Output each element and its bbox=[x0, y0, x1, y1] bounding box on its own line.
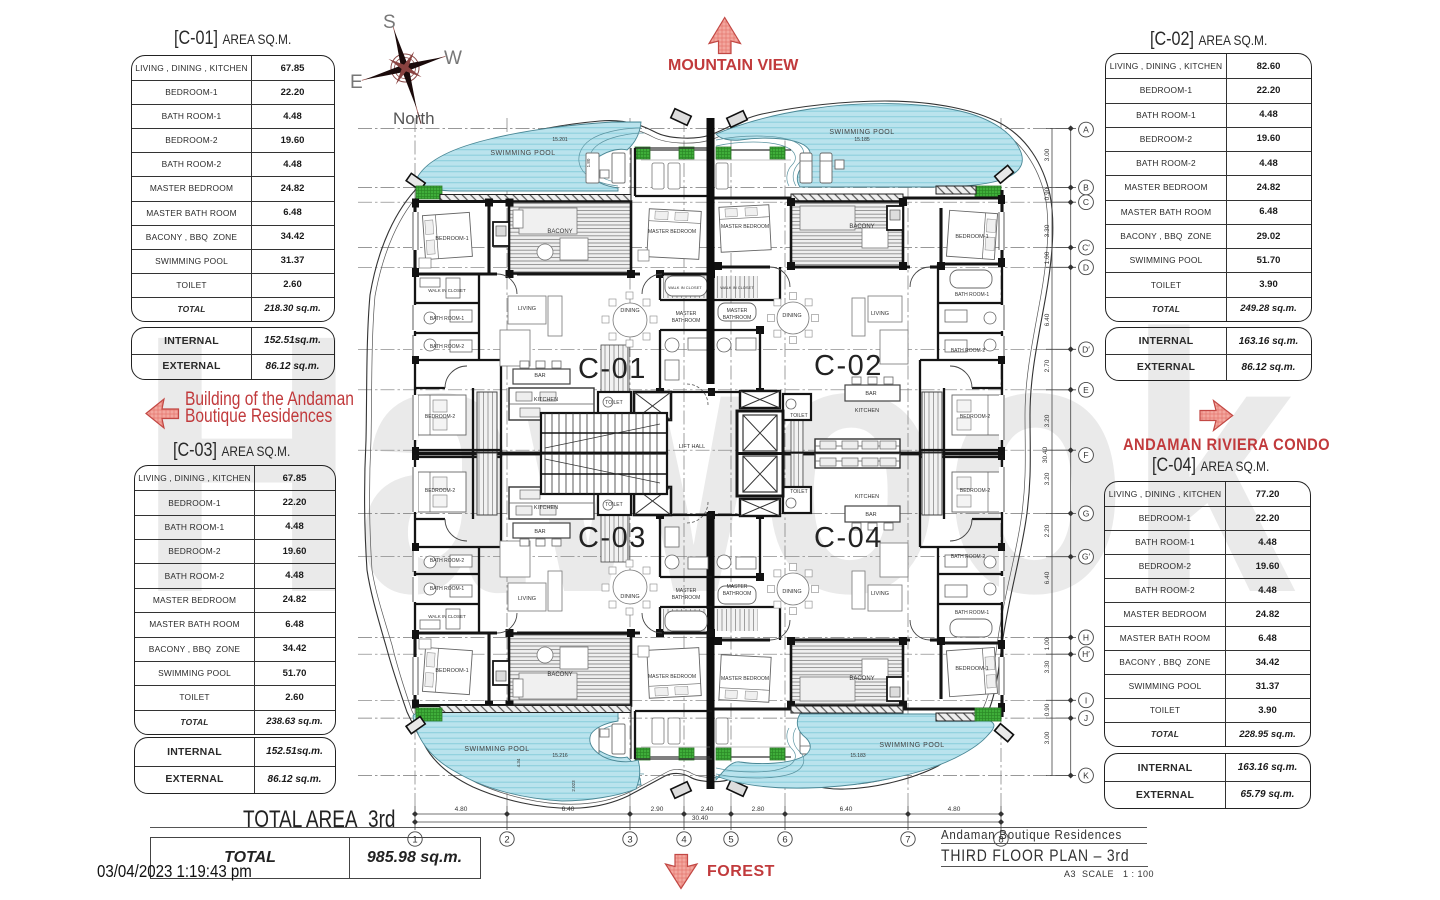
svg-text:MASTER: MASTER bbox=[727, 308, 748, 314]
svg-text:MASTER: MASTER bbox=[676, 588, 697, 594]
svg-text:S: S bbox=[383, 12, 396, 33]
svg-text:BATHROOM: BATHROOM bbox=[723, 591, 752, 597]
svg-text:BEDROOM-2: BEDROOM-2 bbox=[960, 488, 991, 494]
svg-text:TOILET: TOILET bbox=[605, 400, 622, 406]
svg-text:BAR: BAR bbox=[865, 391, 876, 397]
svg-text:KITCHEN: KITCHEN bbox=[534, 397, 558, 403]
svg-text:I: I bbox=[1085, 695, 1087, 705]
svg-text:BEDROOM-1: BEDROOM-1 bbox=[955, 666, 988, 672]
svg-text:BAR: BAR bbox=[865, 512, 876, 518]
svg-text:E: E bbox=[1083, 385, 1089, 395]
svg-text:3.30: 3.30 bbox=[1044, 660, 1051, 673]
svg-text:BATH ROOM-1: BATH ROOM-1 bbox=[430, 586, 465, 592]
svg-text:WALK IN CLOSET: WALK IN CLOSET bbox=[720, 285, 754, 290]
svg-text:1.80: 1.80 bbox=[586, 158, 591, 167]
svg-text:BATH ROOM-2: BATH ROOM-2 bbox=[430, 344, 465, 350]
svg-text:BATH ROOM-1: BATH ROOM-1 bbox=[955, 610, 990, 616]
svg-text:TOILET: TOILET bbox=[605, 502, 622, 508]
svg-text:SWIMMING POOL: SWIMMING POOL bbox=[464, 746, 529, 753]
svg-text:LIVING: LIVING bbox=[518, 306, 536, 312]
svg-text:2.20: 2.20 bbox=[1044, 524, 1051, 537]
svg-text:30.40: 30.40 bbox=[692, 815, 709, 822]
svg-text:BATH ROOM-1: BATH ROOM-1 bbox=[955, 292, 990, 298]
svg-text:3.30: 3.30 bbox=[1044, 224, 1051, 237]
svg-text:WALK IN CLOSET: WALK IN CLOSET bbox=[428, 614, 466, 619]
svg-text:2: 2 bbox=[504, 835, 509, 846]
svg-text:DINING: DINING bbox=[620, 594, 639, 600]
svg-text:MASTER BEDROOM: MASTER BEDROOM bbox=[721, 224, 769, 230]
svg-text:BATH ROOM-1: BATH ROOM-1 bbox=[430, 316, 465, 322]
svg-text:6.40: 6.40 bbox=[840, 806, 853, 813]
svg-text:C-04: C-04 bbox=[814, 522, 883, 554]
svg-text:LIFT HALL: LIFT HALL bbox=[679, 444, 706, 450]
svg-text:15.185: 15.185 bbox=[854, 137, 870, 143]
svg-text:BEDROOM-2: BEDROOM-2 bbox=[425, 488, 456, 494]
svg-text:DINING: DINING bbox=[782, 589, 801, 595]
svg-text:BACONY: BACONY bbox=[547, 672, 572, 678]
svg-text:6.40: 6.40 bbox=[562, 806, 575, 813]
svg-text:5: 5 bbox=[728, 835, 733, 846]
svg-text:SWIMMING POOL: SWIMMING POOL bbox=[879, 742, 944, 749]
svg-text:D: D bbox=[1083, 262, 1089, 272]
svg-text:K: K bbox=[1083, 771, 1089, 781]
svg-text:2.40: 2.40 bbox=[701, 806, 714, 813]
svg-text:BEDROOM-2: BEDROOM-2 bbox=[425, 414, 456, 420]
svg-text:4.80: 4.80 bbox=[948, 806, 961, 813]
svg-text:BATH ROOM-2: BATH ROOM-2 bbox=[951, 554, 986, 560]
svg-text:A: A bbox=[1083, 125, 1089, 135]
svg-text:BAR: BAR bbox=[534, 529, 545, 535]
svg-text:30.40: 30.40 bbox=[1042, 446, 1049, 463]
svg-text:MASTER: MASTER bbox=[676, 311, 697, 317]
svg-text:2.70: 2.70 bbox=[1044, 359, 1051, 372]
svg-text:BACONY: BACONY bbox=[547, 229, 572, 235]
svg-text:North: North bbox=[393, 109, 435, 128]
svg-text:LIVING: LIVING bbox=[518, 596, 536, 602]
svg-text:BATHROOM: BATHROOM bbox=[723, 315, 752, 321]
svg-text:4.34: 4.34 bbox=[516, 758, 521, 767]
svg-text:BACONY: BACONY bbox=[849, 676, 874, 682]
svg-text:1.00: 1.00 bbox=[1044, 251, 1051, 264]
svg-text:H: H bbox=[1083, 632, 1089, 642]
svg-text:MASTER BEDROOM: MASTER BEDROOM bbox=[648, 229, 696, 235]
svg-text:4.80: 4.80 bbox=[455, 806, 468, 813]
svg-text:WALK IN CLOSET: WALK IN CLOSET bbox=[668, 285, 702, 290]
svg-text:BATH ROOM-2: BATH ROOM-2 bbox=[430, 558, 465, 564]
svg-text:J: J bbox=[1084, 713, 1088, 723]
svg-text:2.80: 2.80 bbox=[752, 806, 765, 813]
svg-text:15.183: 15.183 bbox=[850, 753, 866, 759]
svg-text:BAR: BAR bbox=[534, 373, 545, 379]
svg-text:C: C bbox=[1083, 197, 1089, 207]
svg-text:G′: G′ bbox=[1082, 552, 1091, 562]
svg-text:2.023: 2.023 bbox=[571, 780, 576, 792]
svg-text:WALK IN CLOSET: WALK IN CLOSET bbox=[428, 288, 466, 293]
svg-text:MASTER BEDROOM: MASTER BEDROOM bbox=[721, 676, 769, 682]
svg-text:2.90: 2.90 bbox=[651, 806, 664, 813]
svg-text:H′: H′ bbox=[1082, 649, 1090, 659]
svg-text:SWIMMING POOL: SWIMMING POOL bbox=[490, 150, 555, 157]
svg-text:15.201: 15.201 bbox=[552, 137, 568, 143]
svg-text:W: W bbox=[444, 48, 462, 69]
svg-text:MASTER: MASTER bbox=[727, 584, 748, 590]
svg-text:3.20: 3.20 bbox=[1044, 472, 1051, 485]
svg-text:BEDROOM-1: BEDROOM-1 bbox=[435, 236, 468, 242]
svg-text:E: E bbox=[350, 72, 363, 93]
svg-text:D′: D′ bbox=[1082, 344, 1090, 354]
svg-text:DINING: DINING bbox=[782, 313, 801, 319]
svg-text:KITCHEN: KITCHEN bbox=[534, 505, 558, 511]
svg-text:1.00: 1.00 bbox=[1044, 637, 1051, 650]
svg-text:3.00: 3.00 bbox=[1044, 148, 1051, 161]
svg-text:DINING: DINING bbox=[620, 308, 639, 314]
svg-text:BATHROOM: BATHROOM bbox=[672, 595, 701, 601]
svg-text:0.90: 0.90 bbox=[1044, 187, 1051, 200]
svg-text:C-03: C-03 bbox=[578, 522, 647, 554]
svg-text:LIVING: LIVING bbox=[871, 591, 889, 597]
svg-text:C′: C′ bbox=[1082, 243, 1090, 253]
svg-text:SWIMMING POOL: SWIMMING POOL bbox=[829, 129, 894, 136]
svg-text:G: G bbox=[1083, 508, 1090, 518]
svg-text:B: B bbox=[1083, 183, 1089, 193]
svg-text:TOILET: TOILET bbox=[790, 413, 807, 419]
svg-text:KITCHEN: KITCHEN bbox=[855, 408, 879, 414]
svg-text:BACONY: BACONY bbox=[849, 224, 874, 230]
svg-text:BEDROOM-2: BEDROOM-2 bbox=[960, 414, 991, 420]
svg-text:6.40: 6.40 bbox=[1044, 313, 1051, 326]
svg-text:KITCHEN: KITCHEN bbox=[855, 494, 879, 500]
svg-text:BEDROOM-1: BEDROOM-1 bbox=[435, 668, 468, 674]
svg-text:3: 3 bbox=[627, 835, 632, 846]
svg-text:BEDROOM-1: BEDROOM-1 bbox=[955, 234, 988, 240]
svg-text:LIVING: LIVING bbox=[871, 311, 889, 317]
svg-text:3.20: 3.20 bbox=[1044, 414, 1051, 427]
svg-text:4: 4 bbox=[681, 835, 686, 846]
svg-text:3.00: 3.00 bbox=[1044, 731, 1051, 744]
svg-text:C-02: C-02 bbox=[814, 350, 883, 382]
svg-text:7: 7 bbox=[905, 835, 910, 846]
svg-text:6.40: 6.40 bbox=[1044, 571, 1051, 584]
svg-text:MASTER BEDROOM: MASTER BEDROOM bbox=[648, 674, 696, 680]
svg-text:TOILET: TOILET bbox=[790, 489, 807, 495]
svg-text:BATHROOM: BATHROOM bbox=[672, 318, 701, 324]
svg-text:0.90: 0.90 bbox=[1044, 703, 1051, 716]
svg-text:BATH ROOM-2: BATH ROOM-2 bbox=[951, 348, 986, 354]
svg-text:F: F bbox=[1083, 450, 1088, 460]
svg-text:6: 6 bbox=[782, 835, 787, 846]
svg-text:C-01: C-01 bbox=[578, 353, 647, 385]
svg-text:15.216: 15.216 bbox=[552, 753, 568, 759]
